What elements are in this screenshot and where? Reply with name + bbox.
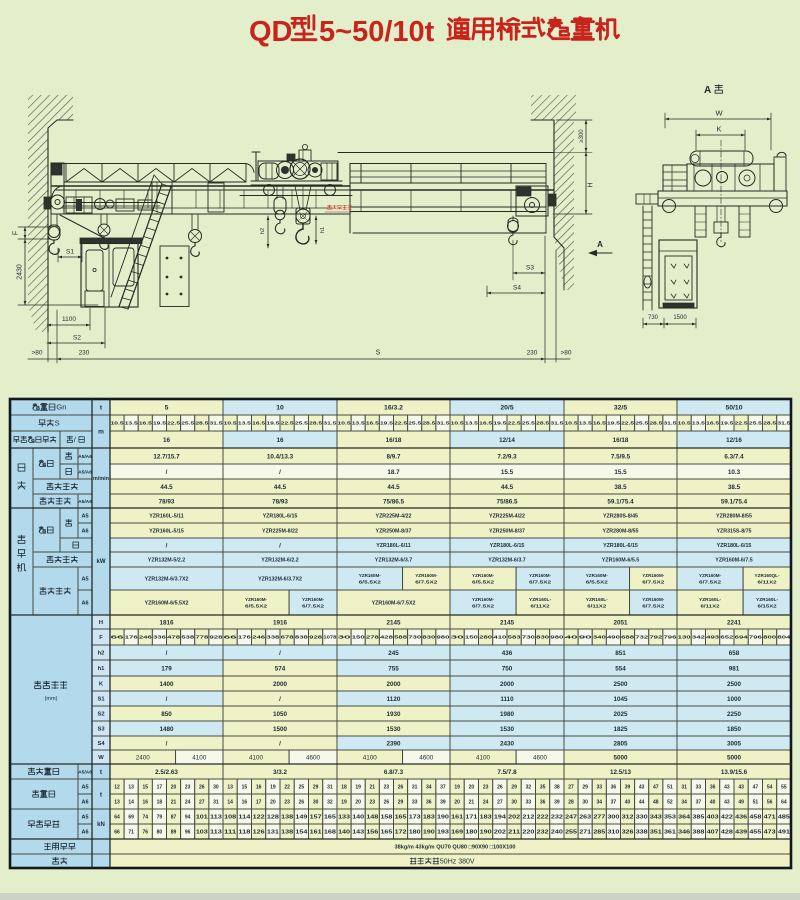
svg-text:80: 80 (157, 829, 163, 835)
svg-text:428: 428 (380, 635, 394, 640)
svg-text:19.5: 19.5 (380, 421, 394, 426)
svg-text:22.5: 22.5 (621, 421, 635, 426)
svg-text:29: 29 (398, 799, 404, 805)
svg-text:6/7.5X2: 6/7.5X2 (642, 579, 664, 585)
svg-text:33: 33 (526, 799, 532, 805)
svg-text:36: 36 (710, 784, 716, 790)
svg-text:96: 96 (185, 829, 191, 835)
svg-text:340: 340 (593, 635, 607, 640)
svg-text:>80: >80 (560, 349, 571, 356)
svg-text:25.5: 25.5 (295, 421, 309, 426)
svg-text:55: 55 (781, 784, 787, 790)
svg-text:YZR160M-: YZR160M- (472, 573, 494, 579)
svg-text:16.5: 16.5 (366, 421, 380, 426)
svg-text:165: 165 (324, 814, 336, 820)
svg-text:A5: A5 (81, 815, 88, 821)
svg-text:25.5: 25.5 (749, 421, 763, 426)
svg-text:5: 5 (165, 404, 169, 411)
svg-text:10: 10 (276, 404, 284, 411)
svg-text:31: 31 (412, 784, 418, 790)
svg-text:21: 21 (370, 784, 376, 790)
svg-text:28.5: 28.5 (763, 421, 777, 426)
svg-text:980: 980 (436, 635, 450, 640)
svg-text:S1: S1 (66, 248, 74, 255)
svg-text:165: 165 (395, 814, 407, 820)
svg-text:A5/A6: A5/A6 (78, 769, 92, 775)
svg-text:39: 39 (625, 784, 631, 790)
svg-text:246: 246 (252, 635, 266, 640)
svg-text:W: W (715, 109, 723, 118)
svg-text:20: 20 (171, 784, 177, 790)
svg-text:1930: 1930 (386, 711, 401, 718)
svg-text:114: 114 (238, 814, 250, 820)
svg-text:38kg/m 43kg/m QU70 QU80 □9: 38kg/m 43kg/m QU70 QU80 □90X90 □100X100 (395, 845, 516, 851)
svg-text:/: / (279, 740, 281, 747)
svg-text:35: 35 (540, 784, 546, 790)
svg-text:1816: 1816 (159, 619, 174, 626)
svg-text:13.5: 13.5 (238, 421, 252, 426)
svg-text:44.5: 44.5 (387, 484, 400, 491)
svg-text:38.5: 38.5 (728, 484, 741, 491)
svg-text:800: 800 (763, 635, 777, 640)
svg-text:6.8/7.3: 6.8/7.3 (384, 769, 404, 776)
svg-text:6/7.5X2: 6/7.5X2 (415, 579, 437, 585)
svg-text:64: 64 (114, 814, 120, 820)
svg-text:27: 27 (568, 784, 574, 790)
svg-text:176: 176 (125, 635, 139, 640)
svg-text:16.5: 16.5 (139, 421, 153, 426)
svg-text:190: 190 (437, 814, 449, 820)
svg-text:118: 118 (238, 829, 250, 835)
svg-text:44.5: 44.5 (501, 484, 514, 491)
svg-text:22: 22 (284, 784, 290, 790)
svg-text:838: 838 (295, 635, 309, 640)
svg-text:343: 343 (650, 814, 662, 820)
svg-text:1100: 1100 (62, 316, 76, 323)
svg-text:29: 29 (582, 784, 588, 790)
svg-text:A: A (704, 85, 711, 96)
svg-text:YZR160L-: YZR160L- (756, 597, 778, 603)
svg-text:YZR160M-6/5.5: YZR160M-6/5.5 (602, 557, 639, 563)
svg-text:71: 71 (128, 829, 134, 835)
svg-text:2.5/2.63: 2.5/2.63 (155, 769, 178, 776)
svg-text:796: 796 (749, 635, 763, 640)
svg-text:422: 422 (721, 814, 733, 820)
svg-text:1825: 1825 (613, 726, 628, 733)
svg-text:342: 342 (692, 635, 706, 640)
svg-text:20: 20 (454, 799, 460, 805)
svg-text:4600: 4600 (533, 754, 548, 761)
svg-text:YZR180L-6/15: YZR180L-6/15 (717, 543, 752, 549)
svg-text:YZR132M-6/3.7X2: YZR132M-6/3.7X2 (258, 576, 302, 582)
svg-text:232: 232 (551, 814, 563, 820)
svg-text:29: 29 (511, 784, 517, 790)
svg-text:YZR160QL-: YZR160QL- (755, 573, 780, 579)
svg-text:138: 138 (281, 829, 293, 835)
svg-text:212: 212 (522, 814, 534, 820)
svg-text:7.5/7.8: 7.5/7.8 (497, 769, 517, 776)
svg-text:/: / (166, 469, 168, 476)
svg-text:26: 26 (199, 784, 205, 790)
svg-text:H: H (588, 182, 595, 187)
svg-text:64: 64 (781, 799, 787, 805)
svg-text:6/11X2: 6/11X2 (587, 603, 606, 609)
svg-text:6.3/7.4: 6.3/7.4 (724, 453, 744, 460)
svg-text:338: 338 (266, 635, 280, 640)
svg-text:YZR160L-: YZR160L- (529, 597, 551, 603)
svg-text:/: / (74, 437, 76, 444)
svg-text:33: 33 (597, 784, 603, 790)
svg-text:YZR180L-6/11: YZR180L-6/11 (376, 543, 411, 549)
svg-text:4600: 4600 (306, 754, 321, 761)
svg-text:7.5/9.5: 7.5/9.5 (611, 453, 631, 460)
svg-text:23: 23 (384, 784, 390, 790)
svg-text:43: 43 (724, 784, 730, 790)
svg-text:2241: 2241 (727, 619, 742, 626)
svg-text:6/11X2: 6/11X2 (701, 603, 720, 609)
svg-text:2250: 2250 (727, 711, 742, 718)
svg-text:33: 33 (412, 799, 418, 805)
svg-text:S2: S2 (73, 334, 81, 341)
svg-text:38: 38 (554, 784, 560, 790)
svg-text:410: 410 (493, 635, 507, 640)
svg-text:7.2/9.3: 7.2/9.3 (497, 453, 517, 460)
svg-text:YZR250M-8/37: YZR250M-8/37 (376, 528, 412, 534)
svg-text:330: 330 (636, 814, 648, 820)
svg-text:S: S (55, 419, 60, 428)
svg-text:31.5: 31.5 (323, 421, 337, 426)
svg-text:30: 30 (451, 635, 465, 640)
svg-text:583: 583 (508, 635, 522, 640)
svg-text:6/5.5X2: 6/5.5X2 (245, 603, 267, 609)
svg-text:10.5: 10.5 (451, 421, 465, 426)
svg-text:928: 928 (309, 635, 323, 640)
svg-text:30: 30 (582, 799, 588, 805)
svg-text:6/7.5X2: 6/7.5X2 (302, 603, 324, 609)
svg-text:22.5: 22.5 (394, 421, 408, 426)
svg-text:246: 246 (139, 635, 153, 640)
svg-text:h2: h2 (98, 651, 105, 657)
svg-text:491: 491 (778, 829, 790, 835)
svg-text:19.5: 19.5 (607, 421, 621, 426)
svg-text:2805: 2805 (613, 740, 628, 747)
svg-text:171: 171 (465, 814, 477, 820)
svg-text:16/18: 16/18 (613, 437, 629, 444)
svg-text:140: 140 (338, 829, 350, 835)
svg-text:22.5: 22.5 (167, 421, 181, 426)
svg-text:385: 385 (692, 814, 704, 820)
svg-text:20: 20 (270, 799, 276, 805)
svg-text:14: 14 (128, 799, 134, 805)
svg-text:194: 194 (494, 814, 506, 820)
svg-text:183: 183 (423, 814, 435, 820)
svg-text:10.5: 10.5 (111, 421, 125, 426)
svg-text:172: 172 (395, 829, 407, 835)
svg-text:76: 76 (143, 829, 149, 835)
svg-text:176: 176 (238, 635, 252, 640)
svg-text:16.5: 16.5 (252, 421, 266, 426)
svg-text:6/15X2: 6/15X2 (758, 603, 777, 609)
svg-text:202: 202 (508, 814, 520, 820)
svg-text:658: 658 (729, 650, 740, 657)
svg-text:74: 74 (143, 814, 149, 820)
svg-text:1530: 1530 (386, 726, 401, 733)
svg-text:A5/A6: A5/A6 (78, 469, 92, 475)
svg-text:247: 247 (565, 814, 577, 820)
svg-text:25: 25 (299, 784, 305, 790)
svg-text:473: 473 (764, 829, 776, 835)
svg-text:Gn: Gn (56, 403, 66, 412)
svg-text:6/11X2: 6/11X2 (758, 579, 777, 585)
svg-text:YZR160L-: YZR160L- (699, 597, 721, 603)
svg-text:131: 131 (267, 829, 279, 835)
svg-text:28.5: 28.5 (195, 421, 209, 426)
svg-text:13.5: 13.5 (352, 421, 366, 426)
svg-text:16: 16 (143, 799, 149, 805)
svg-text:12/14: 12/14 (499, 437, 515, 444)
svg-text:19: 19 (355, 784, 361, 790)
svg-text:122: 122 (253, 814, 265, 820)
svg-text:851: 851 (615, 650, 626, 657)
svg-text:485: 485 (778, 814, 790, 820)
svg-text:A: A (597, 240, 603, 249)
svg-text:1530: 1530 (500, 726, 515, 733)
svg-text:981: 981 (729, 665, 740, 672)
svg-text:YZR160M-: YZR160M- (245, 597, 267, 603)
svg-text:40: 40 (710, 799, 716, 805)
svg-text:18: 18 (341, 784, 347, 790)
svg-text:5000: 5000 (613, 754, 628, 761)
svg-text:34: 34 (426, 784, 432, 790)
svg-text:F: F (13, 231, 20, 235)
svg-text:18.7: 18.7 (387, 469, 400, 476)
svg-text:YZR280S-8/45: YZR280S-8/45 (603, 513, 638, 519)
svg-text:1000: 1000 (727, 696, 742, 703)
svg-text:78/93: 78/93 (272, 498, 288, 505)
svg-text:43: 43 (639, 784, 645, 790)
svg-text:796: 796 (663, 635, 677, 640)
svg-text:A6: A6 (81, 800, 88, 806)
svg-text:4100: 4100 (363, 754, 378, 761)
svg-text:13: 13 (227, 784, 233, 790)
svg-text:26: 26 (497, 784, 503, 790)
svg-text:156: 156 (366, 829, 378, 835)
svg-text:23: 23 (185, 784, 191, 790)
svg-text:351: 351 (650, 829, 662, 835)
svg-text:YZR180L-6/15: YZR180L-6/15 (490, 543, 525, 549)
svg-text:1980: 1980 (500, 711, 515, 718)
svg-text:33: 33 (696, 784, 702, 790)
svg-text:140: 140 (352, 814, 364, 820)
svg-text:10.5: 10.5 (678, 421, 692, 426)
svg-text:30: 30 (338, 635, 352, 640)
svg-text:/: / (166, 696, 168, 703)
svg-text:YZR160L-5/11: YZR160L-5/11 (149, 513, 184, 519)
svg-text:YZR280M-8/55: YZR280M-8/55 (716, 513, 752, 519)
svg-text:S4: S4 (97, 741, 105, 747)
svg-text:6/7.5X2: 6/7.5X2 (529, 579, 551, 585)
svg-text:338: 338 (636, 829, 648, 835)
svg-text:22.5: 22.5 (281, 421, 295, 426)
svg-text:S3: S3 (526, 264, 534, 271)
svg-text:18: 18 (157, 799, 163, 805)
svg-text:19.5: 19.5 (720, 421, 734, 426)
svg-text:31.5: 31.5 (209, 421, 223, 426)
svg-text:750: 750 (502, 665, 513, 672)
svg-text:222: 222 (537, 814, 549, 820)
svg-text:730: 730 (648, 315, 659, 321)
svg-text:6/5.5X2: 6/5.5X2 (472, 579, 494, 585)
svg-text:YZR160M-: YZR160M- (586, 573, 608, 579)
svg-text:133: 133 (338, 814, 350, 820)
svg-text:YZR132M-6/3.7X2: YZR132M-6/3.7X2 (145, 576, 189, 582)
svg-text:YZR160M-: YZR160M- (302, 597, 324, 603)
svg-text:H: H (99, 620, 103, 626)
svg-text:278: 278 (366, 635, 380, 640)
svg-text:730: 730 (522, 635, 536, 640)
svg-text:YZR160M-: YZR160M- (415, 573, 437, 579)
svg-text:13: 13 (114, 799, 120, 805)
svg-text:52: 52 (667, 799, 673, 805)
svg-text:161: 161 (451, 814, 463, 820)
svg-text:1500: 1500 (273, 726, 288, 733)
svg-text:428: 428 (721, 829, 733, 835)
svg-text:A6: A6 (81, 830, 88, 836)
svg-text:240: 240 (551, 829, 563, 835)
svg-text:13.5: 13.5 (692, 421, 706, 426)
svg-text:20: 20 (469, 784, 475, 790)
svg-text:A5: A5 (81, 514, 88, 520)
svg-text:90: 90 (579, 635, 593, 640)
svg-text:19.5: 19.5 (266, 421, 280, 426)
svg-text:149: 149 (295, 814, 307, 820)
svg-text:439: 439 (735, 829, 747, 835)
svg-text:493: 493 (706, 635, 720, 640)
svg-text:326: 326 (622, 829, 634, 835)
svg-text:190: 190 (423, 829, 435, 835)
svg-text:1400: 1400 (159, 681, 174, 688)
svg-text:31.5: 31.5 (663, 421, 677, 426)
svg-text:830: 830 (422, 635, 436, 640)
svg-text:128: 128 (267, 814, 279, 820)
svg-text:23: 23 (483, 784, 489, 790)
svg-text:277: 277 (593, 814, 605, 820)
svg-text:38.5: 38.5 (614, 484, 627, 491)
svg-text:688: 688 (621, 635, 635, 640)
svg-text:59.1/75.4: 59.1/75.4 (607, 498, 634, 505)
svg-text:39: 39 (440, 799, 446, 805)
svg-text:22.5: 22.5 (508, 421, 522, 426)
svg-text:353: 353 (664, 814, 676, 820)
svg-text:16.5: 16.5 (479, 421, 493, 426)
svg-text:34: 34 (597, 799, 603, 805)
svg-text:YZR160M-: YZR160M- (359, 573, 381, 579)
svg-text:66: 66 (224, 635, 238, 640)
svg-text:25.5: 25.5 (181, 421, 195, 426)
svg-text:15: 15 (143, 784, 149, 790)
svg-text:13.5: 13.5 (579, 421, 593, 426)
svg-text:778: 778 (195, 635, 209, 640)
svg-text:230: 230 (79, 349, 90, 356)
svg-text:A5/A6: A5/A6 (78, 499, 92, 505)
svg-text:A6: A6 (81, 529, 88, 535)
svg-text:15: 15 (242, 784, 248, 790)
svg-text:12.5/13: 12.5/13 (610, 769, 632, 776)
svg-text:78/93: 78/93 (159, 498, 175, 505)
svg-text:51: 51 (667, 784, 673, 790)
svg-text:230: 230 (527, 349, 538, 356)
svg-text:31.5: 31.5 (777, 421, 791, 426)
svg-text:30: 30 (511, 799, 517, 805)
svg-text:179: 179 (161, 665, 172, 672)
svg-text:346: 346 (678, 829, 690, 835)
svg-text:59.1/75.4: 59.1/75.4 (721, 498, 748, 505)
svg-text:K: K (716, 125, 721, 134)
svg-text:1850: 1850 (727, 726, 742, 733)
svg-text:16: 16 (242, 799, 248, 805)
svg-text:436: 436 (735, 814, 747, 820)
svg-text:32: 32 (526, 784, 532, 790)
svg-text:678: 678 (281, 635, 295, 640)
svg-text:310: 310 (607, 829, 619, 835)
svg-text:361: 361 (664, 829, 676, 835)
svg-text:4100: 4100 (476, 754, 491, 761)
svg-text:YZR160M-: YZR160M- (699, 573, 721, 579)
svg-text:148: 148 (366, 814, 378, 820)
svg-text:S: S (376, 350, 381, 357)
svg-text:23: 23 (284, 799, 290, 805)
svg-text:31: 31 (681, 784, 687, 790)
svg-text:h2: h2 (260, 228, 266, 234)
svg-text:364: 364 (678, 814, 690, 820)
svg-text:49: 49 (738, 799, 744, 805)
svg-text:157: 157 (310, 814, 322, 820)
svg-text:154: 154 (295, 829, 307, 835)
svg-text:51: 51 (753, 799, 759, 805)
svg-text:27: 27 (199, 799, 205, 805)
svg-text:YZR132M-6/2.2: YZR132M-6/2.2 (261, 557, 298, 563)
svg-text:≥300: ≥300 (579, 129, 585, 143)
svg-text:2430: 2430 (500, 740, 515, 747)
svg-text:10.5: 10.5 (224, 421, 238, 426)
svg-text:27: 27 (497, 799, 503, 805)
svg-text:180: 180 (465, 829, 477, 835)
svg-text:16/18: 16/18 (386, 437, 402, 444)
svg-text:113: 113 (210, 814, 222, 820)
svg-text:407: 407 (707, 829, 719, 835)
svg-text:30: 30 (313, 799, 319, 805)
svg-text:2390: 2390 (386, 740, 401, 747)
svg-text:403: 403 (707, 814, 719, 820)
svg-text:19: 19 (270, 784, 276, 790)
svg-text:2145: 2145 (500, 619, 515, 626)
svg-text:1050: 1050 (273, 711, 288, 718)
svg-text:108: 108 (224, 814, 236, 820)
svg-text:1120: 1120 (387, 696, 401, 703)
svg-text:h1: h1 (320, 227, 326, 233)
svg-text:kN: kN (97, 822, 105, 828)
svg-text:2025: 2025 (613, 711, 628, 718)
svg-text:28: 28 (568, 799, 574, 805)
svg-text:14: 14 (227, 799, 233, 805)
svg-text:/: / (279, 469, 281, 476)
svg-text:kW: kW (97, 559, 106, 565)
svg-text:158: 158 (380, 814, 392, 820)
svg-text:2000: 2000 (273, 681, 288, 688)
svg-text:S3: S3 (97, 727, 105, 733)
svg-text:YZR180L-6/15: YZR180L-6/15 (263, 513, 298, 519)
svg-text:43: 43 (724, 799, 730, 805)
